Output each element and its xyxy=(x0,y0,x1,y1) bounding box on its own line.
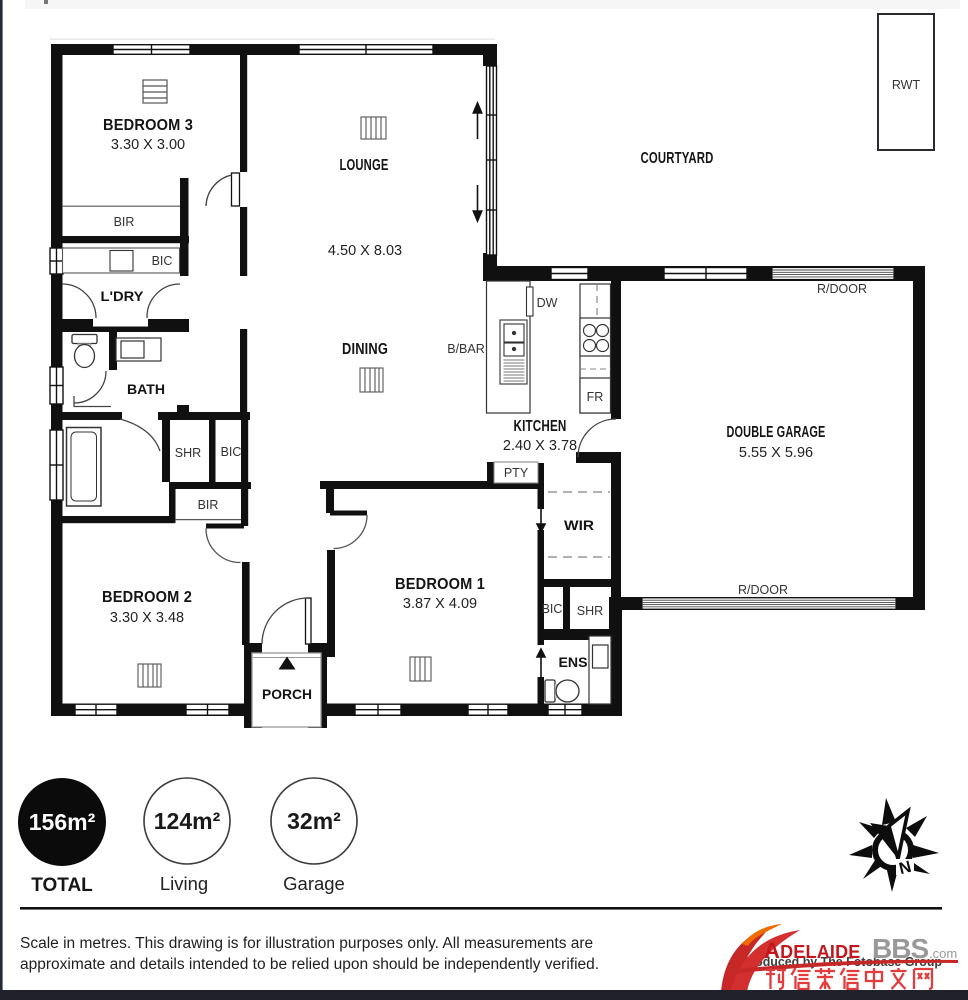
svg-text:BEDROOM 2: BEDROOM 2 xyxy=(102,589,192,606)
svg-text:SHR: SHR xyxy=(577,604,603,618)
svg-text:RWT: RWT xyxy=(892,78,921,92)
svg-text:Garage: Garage xyxy=(283,873,345,894)
svg-text:DOUBLE GARAGE: DOUBLE GARAGE xyxy=(727,424,826,441)
svg-text:COURTYARD: COURTYARD xyxy=(641,150,714,167)
svg-text:4.50 X 8.03: 4.50 X 8.03 xyxy=(328,243,402,259)
svg-text:BEDROOM 3: BEDROOM 3 xyxy=(103,117,193,134)
svg-text:BIR: BIR xyxy=(198,498,219,512)
svg-text:BIC: BIC xyxy=(542,602,563,616)
svg-text:ADELAIDE: ADELAIDE xyxy=(764,938,861,963)
svg-text:BIC: BIC xyxy=(221,445,242,459)
svg-text:BBS: BBS xyxy=(872,933,928,964)
svg-text:B/BAR: B/BAR xyxy=(447,342,485,356)
svg-text:WIR: WIR xyxy=(564,517,594,533)
svg-text:DW: DW xyxy=(537,296,558,310)
svg-text:.com: .com xyxy=(929,946,957,961)
svg-text:PTY: PTY xyxy=(504,466,529,480)
svg-text:156m²: 156m² xyxy=(29,809,96,835)
svg-text:3.30 X 3.48: 3.30 X 3.48 xyxy=(110,610,184,626)
svg-text:5.55 X 5.96: 5.55 X 5.96 xyxy=(739,445,813,461)
svg-text:ENS: ENS xyxy=(559,654,588,670)
svg-text:BIC: BIC xyxy=(152,254,173,268)
svg-text:DINING: DINING xyxy=(342,341,388,358)
svg-text:FR: FR xyxy=(587,390,604,404)
svg-text:3.87 X 4.09: 3.87 X 4.09 xyxy=(403,596,477,612)
svg-text:2.40 X 3.78: 2.40 X 3.78 xyxy=(503,438,577,454)
svg-text:Living: Living xyxy=(160,873,208,894)
svg-text:approximate and details intend: approximate and details intended to be r… xyxy=(20,956,599,973)
svg-text:LOUNGE: LOUNGE xyxy=(340,157,389,174)
svg-text:Scale in metres. This drawing: Scale in metres. This drawing is for ill… xyxy=(20,935,593,952)
svg-text:3.30 X 3.00: 3.30 X 3.00 xyxy=(111,137,185,153)
svg-text:KITCHEN: KITCHEN xyxy=(514,418,567,435)
svg-text:SHR: SHR xyxy=(175,446,201,460)
svg-text:BEDROOM 1: BEDROOM 1 xyxy=(395,576,485,593)
svg-text:TOTAL: TOTAL xyxy=(31,875,93,896)
svg-text:32m²: 32m² xyxy=(287,808,341,834)
svg-text:124m²: 124m² xyxy=(154,808,221,834)
svg-text:R/DOOR: R/DOOR xyxy=(738,583,788,597)
svg-text:PORCH: PORCH xyxy=(262,686,312,702)
svg-text:BATH: BATH xyxy=(127,381,165,397)
svg-text:L'DRY: L'DRY xyxy=(101,288,145,304)
svg-text:BIR: BIR xyxy=(114,215,135,229)
svg-text:R/DOOR: R/DOOR xyxy=(817,282,867,296)
